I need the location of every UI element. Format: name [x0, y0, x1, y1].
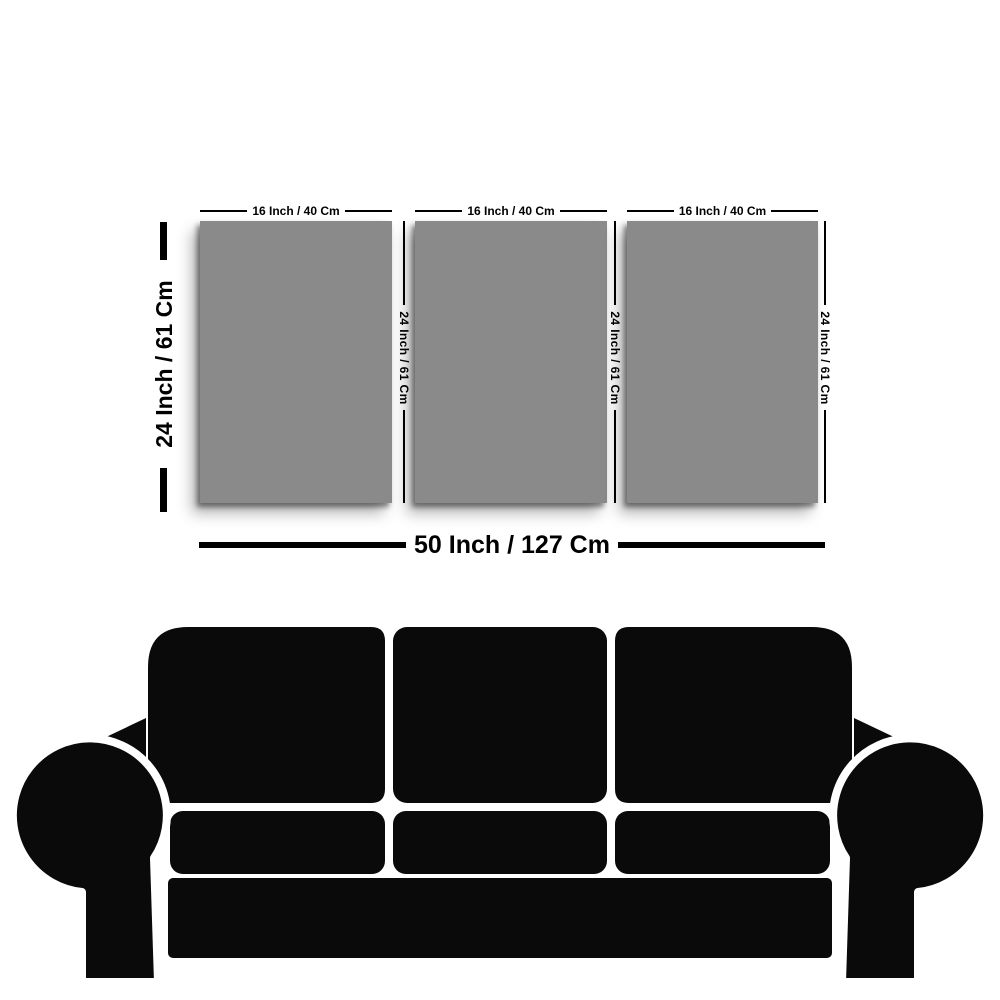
size-guide-diagram: 16 Inch / 40 Cm 16 Inch / 40 Cm 16 Inch …: [0, 0, 1000, 1000]
ruler-line: [560, 210, 607, 212]
sofa-seat-cushion-right: [615, 811, 830, 874]
ruler-line: [403, 410, 405, 503]
ruler-line: [824, 221, 826, 305]
sofa-back-cushion-right: [615, 627, 852, 803]
ruler-end-cap: [160, 468, 167, 512]
ruler-bar: [618, 542, 825, 548]
ruler-line: [614, 410, 616, 503]
sofa-armrest-right: [833, 738, 987, 982]
ruler-line: [614, 221, 616, 305]
sofa-icon: [0, 600, 1000, 1000]
panel-1-width-label: 16 Inch / 40 Cm: [247, 203, 344, 219]
sofa-seat-cushion-left: [170, 811, 385, 874]
panel-2-height-label: 24 Inch / 61 Cm: [608, 298, 622, 418]
ruler-line: [771, 210, 818, 212]
canvas-panel-2: [415, 221, 607, 503]
panel-2-width-label: 16 Inch / 40 Cm: [462, 203, 559, 219]
sofa-armrest-left: [13, 738, 167, 982]
panel-1-height-label: 24 Inch / 61 Cm: [397, 298, 411, 418]
canvas-panel-1: [200, 221, 392, 503]
ruler-line: [403, 221, 405, 305]
panel-3-width-ruler: 16 Inch / 40 Cm: [627, 203, 818, 219]
panel-3-height-label: 24 Inch / 61 Cm: [818, 298, 832, 418]
ruler-line: [627, 210, 674, 212]
panel-3-width-label: 16 Inch / 40 Cm: [674, 203, 771, 219]
canvas-panel-3: [627, 221, 818, 503]
sofa-back-cushion-middle: [393, 627, 607, 803]
sofa-seat-cushion-middle: [393, 811, 607, 874]
ruler-line: [824, 410, 826, 503]
ruler-bar: [199, 542, 406, 548]
ruler-line: [345, 210, 392, 212]
sofa-back-cushion-left: [148, 627, 385, 803]
ruler-line: [200, 210, 247, 212]
panel-2-width-ruler: 16 Inch / 40 Cm: [415, 203, 607, 219]
ruler-line: [415, 210, 462, 212]
total-width-label: 50 Inch / 127 Cm: [406, 532, 618, 558]
total-height-label: 24 Inch / 61 Cm: [150, 254, 178, 474]
total-width-ruler: 50 Inch / 127 Cm: [199, 532, 825, 558]
sofa-base: [168, 878, 832, 958]
panel-1-width-ruler: 16 Inch / 40 Cm: [200, 203, 392, 219]
